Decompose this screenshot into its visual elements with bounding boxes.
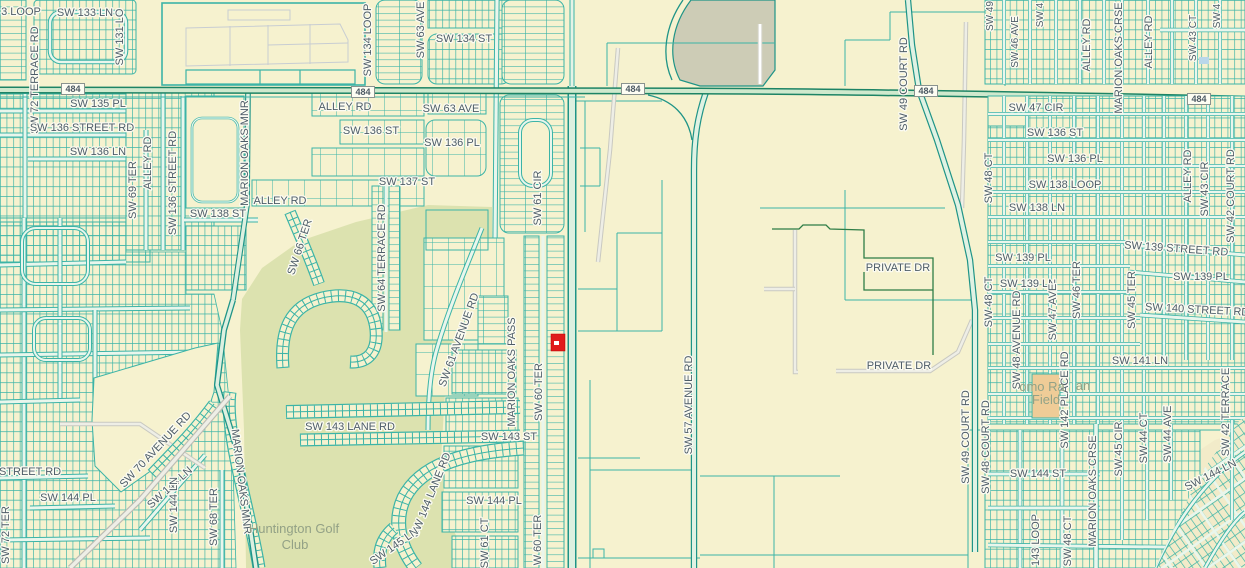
svg-text:ALLEY RD: ALLEY RD xyxy=(319,101,372,113)
svg-text:MARION OAKS CRSE: MARION OAKS CRSE xyxy=(1113,2,1125,113)
svg-text:SW 131 LO: SW 131 LO xyxy=(114,8,126,65)
svg-text:SW 144 ST: SW 144 ST xyxy=(1010,468,1067,480)
svg-text:Club: Club xyxy=(282,537,309,552)
svg-text:SW 48 CT: SW 48 CT xyxy=(983,276,995,327)
svg-text:an: an xyxy=(1076,378,1090,393)
svg-text:MARION OAKS CRSE: MARION OAKS CRSE xyxy=(1087,435,1099,546)
svg-text:SW 64 TERRACE RD: SW 64 TERRACE RD xyxy=(376,204,388,311)
svg-text:SW 63 AVE: SW 63 AVE xyxy=(415,2,427,59)
svg-text:SW 45 CIR: SW 45 CIR xyxy=(1113,421,1125,476)
svg-text:484: 484 xyxy=(65,84,80,94)
svg-text:SW 68 TER: SW 68 TER xyxy=(208,488,220,546)
svg-text:SW 4: SW 4 xyxy=(1035,2,1046,27)
svg-text:SW 42 COURT RD: SW 42 COURT RD xyxy=(1225,149,1237,243)
svg-text:SW 136 PL: SW 136 PL xyxy=(424,137,480,149)
svg-text:SW 72 TERRACE RD: SW 72 TERRACE RD xyxy=(29,26,41,133)
svg-text:SW 43 CIR: SW 43 CIR xyxy=(1199,161,1211,216)
svg-text:SW 57 AVENUE RD: SW 57 AVENUE RD xyxy=(683,356,695,455)
svg-text:SW 134 LOOP: SW 134 LOOP xyxy=(362,4,374,77)
svg-text:SW 48 AVENUE RD: SW 48 AVENUE RD xyxy=(1011,291,1023,390)
svg-text:3 LOOP: 3 LOOP xyxy=(1,6,41,18)
svg-text:SW 135 PL: SW 135 PL xyxy=(70,98,126,110)
svg-text:SW 141 LN: SW 141 LN xyxy=(1112,355,1168,367)
svg-text:SW 136 LN: SW 136 LN xyxy=(70,146,126,158)
svg-text:SW 46 TER: SW 46 TER xyxy=(1071,261,1083,319)
svg-text:SW 133 LN: SW 133 LN xyxy=(57,7,113,19)
svg-text:SW 48 CT: SW 48 CT xyxy=(1062,515,1074,566)
svg-text:SW 139 PL: SW 139 PL xyxy=(995,252,1051,264)
svg-text:SW 134 ST: SW 134 ST xyxy=(436,33,493,45)
svg-text:MARION OAKS PASS: MARION OAKS PASS xyxy=(506,317,518,426)
svg-text:SW 44 CT: SW 44 CT xyxy=(1138,412,1150,463)
svg-text:SW 144 LN: SW 144 LN xyxy=(168,477,180,533)
svg-text:ALLEY RD: ALLEY RD xyxy=(1182,149,1194,202)
svg-text:SW 49 COURT RD: SW 49 COURT RD xyxy=(960,390,972,484)
svg-text:ALLEY RD: ALLEY RD xyxy=(1143,15,1155,68)
svg-text:SW 136 ST: SW 136 ST xyxy=(1027,127,1084,139)
svg-text:SW 136 STREET RD: SW 136 STREET RD xyxy=(30,122,134,134)
svg-text:ALLEY RD: ALLEY RD xyxy=(1081,18,1093,71)
svg-text:ALLEY RD: ALLEY RD xyxy=(254,195,307,207)
svg-text:SW 45 TER: SW 45 TER xyxy=(1126,271,1138,329)
svg-text:SW 144 PL: SW 144 PL xyxy=(40,492,96,504)
svg-text:SW 4: SW 4 xyxy=(1212,3,1223,28)
svg-text:SW 136 PL: SW 136 PL xyxy=(1047,153,1103,165)
svg-text:SW 47 AVE: SW 47 AVE xyxy=(1047,284,1059,341)
svg-text:PRIVATE DR: PRIVATE DR xyxy=(866,262,930,274)
svg-text:SW 63 AVE: SW 63 AVE xyxy=(423,103,480,115)
svg-text:SW 42 TERRACE: SW 42 TERRACE xyxy=(1220,368,1232,456)
svg-text:SW 61 CT: SW 61 CT xyxy=(479,517,491,568)
svg-text:W 60 TER: W 60 TER xyxy=(532,515,544,566)
svg-text:SW 138 LN: SW 138 LN xyxy=(1009,202,1065,214)
svg-text:SW 144 PL: SW 144 PL xyxy=(466,495,522,507)
svg-text:SW 49: SW 49 xyxy=(985,1,996,31)
svg-text:SW 136 ST: SW 136 ST xyxy=(343,125,400,137)
svg-text:SW 136 STREET RD: SW 136 STREET RD xyxy=(167,131,179,235)
svg-text:SW 46 AVE: SW 46 AVE xyxy=(1010,16,1021,68)
svg-text:143 LOOP: 143 LOOP xyxy=(1030,514,1042,566)
svg-text:Huntington Golf: Huntington Golf xyxy=(249,521,340,536)
svg-text:484: 484 xyxy=(355,87,370,97)
svg-text:SW 139 PL: SW 139 PL xyxy=(1173,271,1229,283)
svg-text:SW 60 TER: SW 60 TER xyxy=(533,363,545,421)
svg-text:ALLEY RD: ALLEY RD xyxy=(142,136,154,189)
svg-text:SW 44 AVE: SW 44 AVE xyxy=(1162,406,1174,463)
svg-text:SW 142 PLACE RD: SW 142 PLACE RD xyxy=(1059,351,1071,448)
svg-text:SW 138 LOOP: SW 138 LOOP xyxy=(1029,179,1102,191)
svg-text:STREET RD: STREET RD xyxy=(0,466,61,478)
svg-text:SW 143 LANE RD: SW 143 LANE RD xyxy=(305,421,395,433)
svg-text:PRIVATE DR: PRIVATE DR xyxy=(867,360,931,372)
svg-text:SW 47 CIR: SW 47 CIR xyxy=(1008,102,1063,114)
svg-text:SW 48 COURT RD: SW 48 COURT RD xyxy=(980,400,992,494)
svg-text:484: 484 xyxy=(918,86,933,96)
svg-text:SW 138 ST: SW 138 ST xyxy=(190,208,247,220)
svg-text:Field: Field xyxy=(1032,392,1060,407)
svg-text:MARION OAKS MNR: MARION OAKS MNR xyxy=(239,100,251,206)
svg-text:484: 484 xyxy=(1191,94,1206,104)
svg-text:484: 484 xyxy=(625,84,640,94)
svg-text:SW 69 TER: SW 69 TER xyxy=(127,161,139,219)
svg-text:SW 143 ST: SW 143 ST xyxy=(481,431,538,443)
svg-text:SW 43 CT: SW 43 CT xyxy=(1188,15,1199,61)
svg-text:SW 61 CIR: SW 61 CIR xyxy=(532,170,544,225)
svg-text:SW 48 CT: SW 48 CT xyxy=(983,152,995,203)
svg-text:SW 137 ST: SW 137 ST xyxy=(379,176,436,188)
svg-text:SW 72 TER: SW 72 TER xyxy=(0,506,12,564)
svg-text:SW 49 COURT RD: SW 49 COURT RD xyxy=(898,37,910,131)
